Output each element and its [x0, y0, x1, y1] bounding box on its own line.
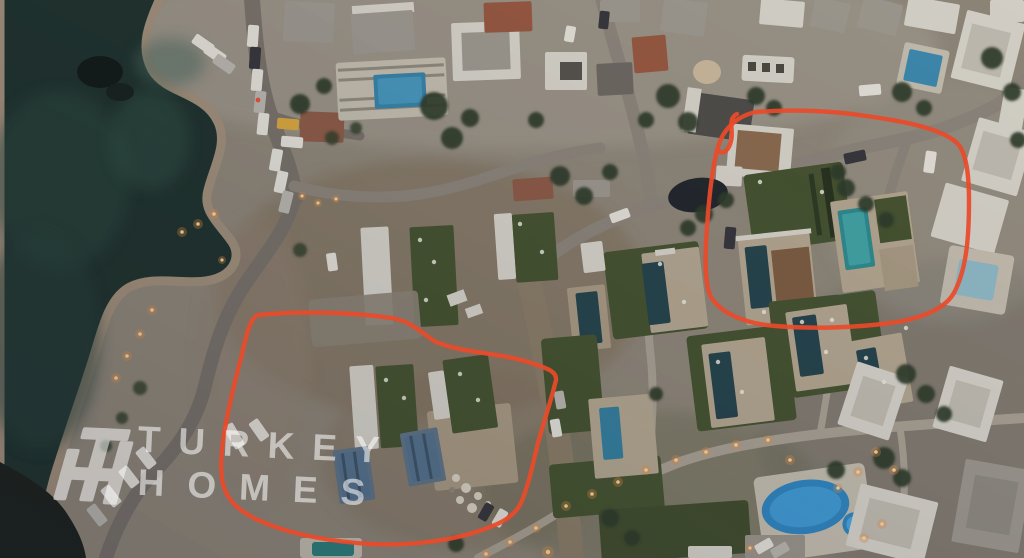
highlight-circle-left	[221, 313, 556, 545]
aerial-drone-photo: TURKEY HOMES	[0, 0, 1024, 558]
annotation-layer	[0, 0, 1024, 558]
highlight-circle-right	[706, 111, 969, 328]
